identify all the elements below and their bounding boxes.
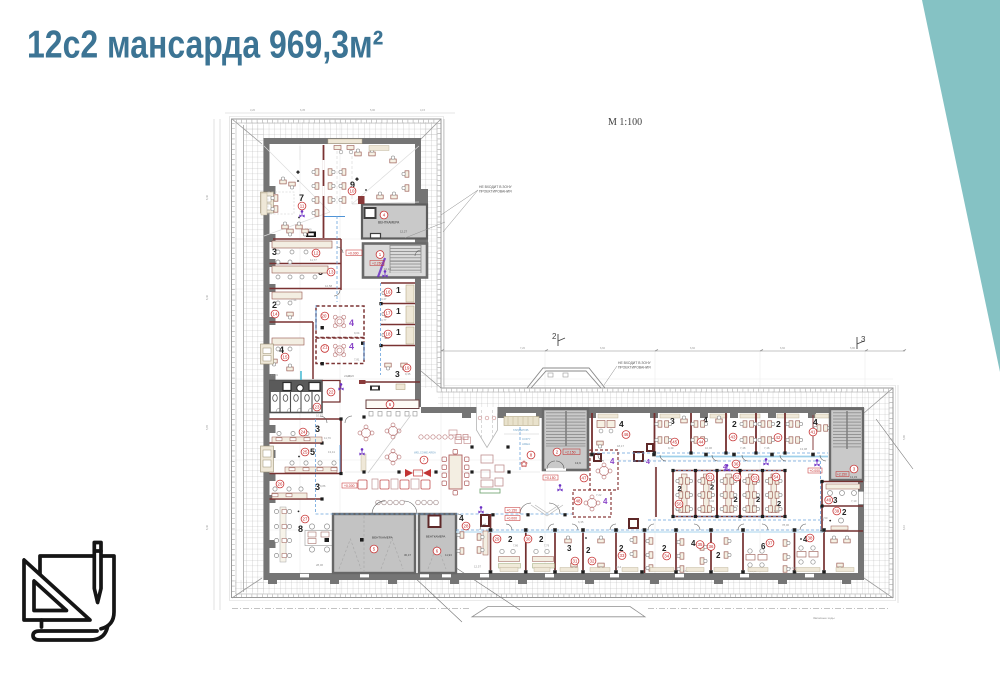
svg-text:38: 38 <box>808 536 813 541</box>
svg-text:29: 29 <box>495 537 500 542</box>
svg-text:1: 1 <box>396 306 401 316</box>
svg-text:2: 2 <box>710 483 714 492</box>
svg-text:4: 4 <box>349 342 354 352</box>
svg-text:+0.000: +0.000 <box>344 484 355 488</box>
svg-text:6,35: 6,35 <box>300 108 306 112</box>
svg-text:13,08: 13,08 <box>800 447 807 451</box>
svg-text:+2.260: +2.260 <box>372 262 383 266</box>
svg-text:42: 42 <box>776 435 781 440</box>
svg-text:48: 48 <box>576 499 581 504</box>
svg-text:40: 40 <box>826 498 831 503</box>
svg-text:7,10: 7,10 <box>851 499 857 503</box>
svg-text:7,86: 7,86 <box>513 544 519 548</box>
svg-text:39: 39 <box>834 509 839 514</box>
svg-text:14: 14 <box>273 312 278 317</box>
svg-text:7,48: 7,48 <box>740 446 746 450</box>
svg-text:30,47: 30,47 <box>404 553 411 557</box>
svg-text:47: 47 <box>582 476 587 481</box>
svg-text:5,91: 5,91 <box>676 508 682 512</box>
svg-text:9,04: 9,04 <box>354 331 360 335</box>
svg-text:10,27: 10,27 <box>316 414 323 418</box>
svg-text:30: 30 <box>526 537 531 542</box>
svg-text:45: 45 <box>672 440 677 445</box>
svg-text:2: 2 <box>842 508 847 517</box>
svg-text:4: 4 <box>646 459 650 466</box>
svg-text:НЕ ВХОДИТ В ЗОНУ: НЕ ВХОДИТ В ЗОНУ <box>618 361 652 365</box>
svg-text:4: 4 <box>603 497 608 506</box>
svg-text:6,60: 6,60 <box>600 346 606 350</box>
svg-text:21: 21 <box>323 345 328 350</box>
svg-text:6,10: 6,10 <box>902 524 906 530</box>
svg-text:5,90: 5,90 <box>370 108 376 112</box>
svg-text:18,17: 18,17 <box>617 444 624 448</box>
svg-text:2: 2 <box>756 495 760 504</box>
svg-text:9,35: 9,35 <box>405 372 411 376</box>
svg-text:12,27: 12,27 <box>400 230 407 234</box>
svg-text:35: 35 <box>698 542 703 547</box>
svg-text:4: 4 <box>349 318 354 328</box>
svg-text:50: 50 <box>677 502 682 507</box>
svg-text:32: 32 <box>590 559 595 564</box>
svg-text:4,47: 4,47 <box>381 297 387 301</box>
svg-text:AREA: AREA <box>522 442 530 446</box>
svg-text:36: 36 <box>709 544 714 549</box>
svg-text:4: 4 <box>610 457 615 466</box>
svg-text:11,93: 11,93 <box>445 553 452 557</box>
svg-text:27: 27 <box>303 517 308 522</box>
svg-text:НЕ ВХОДИТ В ЗОНУ: НЕ ВХОДИТ В ЗОНУ <box>479 185 513 189</box>
svg-text:7,46: 7,46 <box>764 446 770 450</box>
svg-text:12,57: 12,57 <box>474 565 481 569</box>
svg-text:9,86: 9,86 <box>320 484 326 488</box>
svg-text:20: 20 <box>322 314 327 319</box>
svg-text:1: 1 <box>396 327 401 337</box>
svg-text:8: 8 <box>298 524 303 534</box>
svg-text:11: 11 <box>300 204 305 209</box>
svg-text:COPY: COPY <box>522 437 531 441</box>
svg-text:54: 54 <box>774 475 779 480</box>
svg-text:4: 4 <box>619 419 624 429</box>
svg-text:7,81: 7,81 <box>354 358 360 362</box>
svg-text:12с2 мансарда 969,3м²: 12с2 мансарда 969,3м² <box>27 23 383 67</box>
svg-text:11,19: 11,19 <box>271 373 278 377</box>
svg-text:31: 31 <box>573 559 578 564</box>
svg-text:43: 43 <box>731 435 736 440</box>
svg-text:13,9: 13,9 <box>575 461 581 465</box>
svg-text:51: 51 <box>708 475 713 480</box>
svg-text:1: 1 <box>396 285 401 295</box>
svg-text:4,77: 4,77 <box>381 318 387 322</box>
svg-text:2: 2 <box>662 544 667 553</box>
svg-text:6,40: 6,40 <box>205 294 209 300</box>
svg-text:Запасные ходы: Запасные ходы <box>813 616 835 620</box>
svg-text:ГАРДЕРОБ: ГАРДЕРОБ <box>513 428 529 432</box>
svg-text:6,60: 6,60 <box>690 346 696 350</box>
svg-text:10: 10 <box>350 189 355 194</box>
svg-text:13,33: 13,33 <box>850 475 857 479</box>
svg-text:2: 2 <box>678 484 682 493</box>
svg-text:26: 26 <box>278 482 283 487</box>
svg-text:М 1:100: М 1:100 <box>608 117 642 128</box>
svg-text:11,77: 11,77 <box>310 258 317 262</box>
svg-text:2: 2 <box>552 332 557 341</box>
svg-text:37: 37 <box>768 541 773 546</box>
svg-text:+0.000: +0.000 <box>810 469 821 473</box>
svg-text:25: 25 <box>303 450 308 455</box>
svg-text:+2.150: +2.150 <box>837 473 847 477</box>
svg-text:11,76: 11,76 <box>324 436 331 440</box>
svg-text:ВЕНТКАМЕРА: ВЕНТКАМЕРА <box>426 535 445 539</box>
svg-text:6,50: 6,50 <box>822 516 828 520</box>
svg-text:28,06: 28,06 <box>316 563 323 567</box>
svg-text:7,20: 7,20 <box>520 346 526 350</box>
svg-text:44: 44 <box>699 440 704 445</box>
svg-text:4: 4 <box>723 464 727 471</box>
svg-text:6,40: 6,40 <box>205 524 209 530</box>
svg-text:+0.000: +0.000 <box>507 517 518 521</box>
svg-text:3: 3 <box>861 335 866 344</box>
svg-text:2: 2 <box>539 535 544 544</box>
svg-text:19: 19 <box>405 366 410 371</box>
svg-text:13,41: 13,41 <box>328 450 335 454</box>
svg-text:7,44: 7,44 <box>291 298 297 302</box>
svg-text:2: 2 <box>776 419 781 429</box>
svg-text:4,15: 4,15 <box>420 108 426 112</box>
svg-text:18: 18 <box>386 332 391 337</box>
svg-text:9,49: 9,49 <box>668 446 674 450</box>
svg-text:ВЕНТКАМЕРА: ВЕНТКАМЕРА <box>378 221 400 225</box>
svg-text:WELCOME AREA: WELCOME AREA <box>414 451 436 455</box>
svg-text:2: 2 <box>777 499 781 508</box>
svg-text:5,94: 5,94 <box>709 499 715 503</box>
svg-text:12: 12 <box>314 251 319 256</box>
svg-text:52: 52 <box>735 475 740 480</box>
svg-text:+0.000: +0.000 <box>348 251 359 255</box>
svg-text:46: 46 <box>624 432 629 437</box>
svg-text:6,00: 6,00 <box>774 509 780 513</box>
svg-text:3: 3 <box>833 496 838 505</box>
svg-text:2: 2 <box>732 419 737 429</box>
svg-text:5,80: 5,80 <box>902 434 906 440</box>
svg-text:6,35: 6,35 <box>578 520 584 524</box>
svg-text:ПРОЕКТИРОВАНИЯ: ПРОЕКТИРОВАНИЯ <box>618 366 651 370</box>
svg-text:12,58: 12,58 <box>325 284 332 288</box>
svg-text:17: 17 <box>386 311 391 316</box>
svg-text:24: 24 <box>301 430 306 435</box>
svg-text:3: 3 <box>567 544 572 553</box>
svg-text:78,00: 78,00 <box>782 523 789 527</box>
svg-text:23: 23 <box>315 405 320 410</box>
svg-text:2: 2 <box>716 551 721 560</box>
svg-text:3: 3 <box>395 369 400 379</box>
svg-text:5,80: 5,80 <box>850 346 856 350</box>
svg-text:+2.150: +2.150 <box>565 450 576 454</box>
svg-text:+0.150: +0.150 <box>507 509 518 513</box>
svg-text:5: 5 <box>310 447 315 457</box>
svg-text:22: 22 <box>329 390 334 395</box>
svg-text:28: 28 <box>464 524 469 529</box>
svg-text:ВЕНТКАМЕРА: ВЕНТКАМЕРА <box>372 536 394 540</box>
svg-text:24,20: 24,20 <box>347 374 354 378</box>
svg-text:7: 7 <box>299 193 304 203</box>
svg-text:33: 33 <box>620 553 625 558</box>
svg-text:+0.150: +0.150 <box>545 476 556 480</box>
svg-text:5,95: 5,95 <box>205 424 209 430</box>
svg-text:10,06: 10,06 <box>705 446 712 450</box>
svg-text:53: 53 <box>753 476 758 481</box>
svg-text:4: 4 <box>691 539 696 548</box>
svg-text:13: 13 <box>329 270 334 275</box>
svg-text:3,20: 3,20 <box>250 108 256 112</box>
svg-text:2: 2 <box>734 495 738 504</box>
svg-text:2: 2 <box>586 546 591 555</box>
svg-text:6,40: 6,40 <box>205 194 209 200</box>
svg-text:15: 15 <box>283 355 288 360</box>
svg-text:41: 41 <box>811 430 816 435</box>
svg-text:2: 2 <box>508 535 513 544</box>
svg-text:5,84: 5,84 <box>752 504 758 508</box>
svg-text:6,60: 6,60 <box>780 346 786 350</box>
svg-text:8,14: 8,14 <box>616 565 622 569</box>
svg-text:16: 16 <box>386 290 391 295</box>
svg-text:34: 34 <box>664 554 669 559</box>
svg-text:ПРОЕКТИРОВАНИЯ: ПРОЕКТИРОВАНИЯ <box>479 190 512 194</box>
svg-text:6,79: 6,79 <box>733 504 739 508</box>
svg-text:7,79: 7,79 <box>544 544 550 548</box>
svg-text:36: 36 <box>734 462 739 467</box>
svg-text:7,22: 7,22 <box>596 493 602 497</box>
